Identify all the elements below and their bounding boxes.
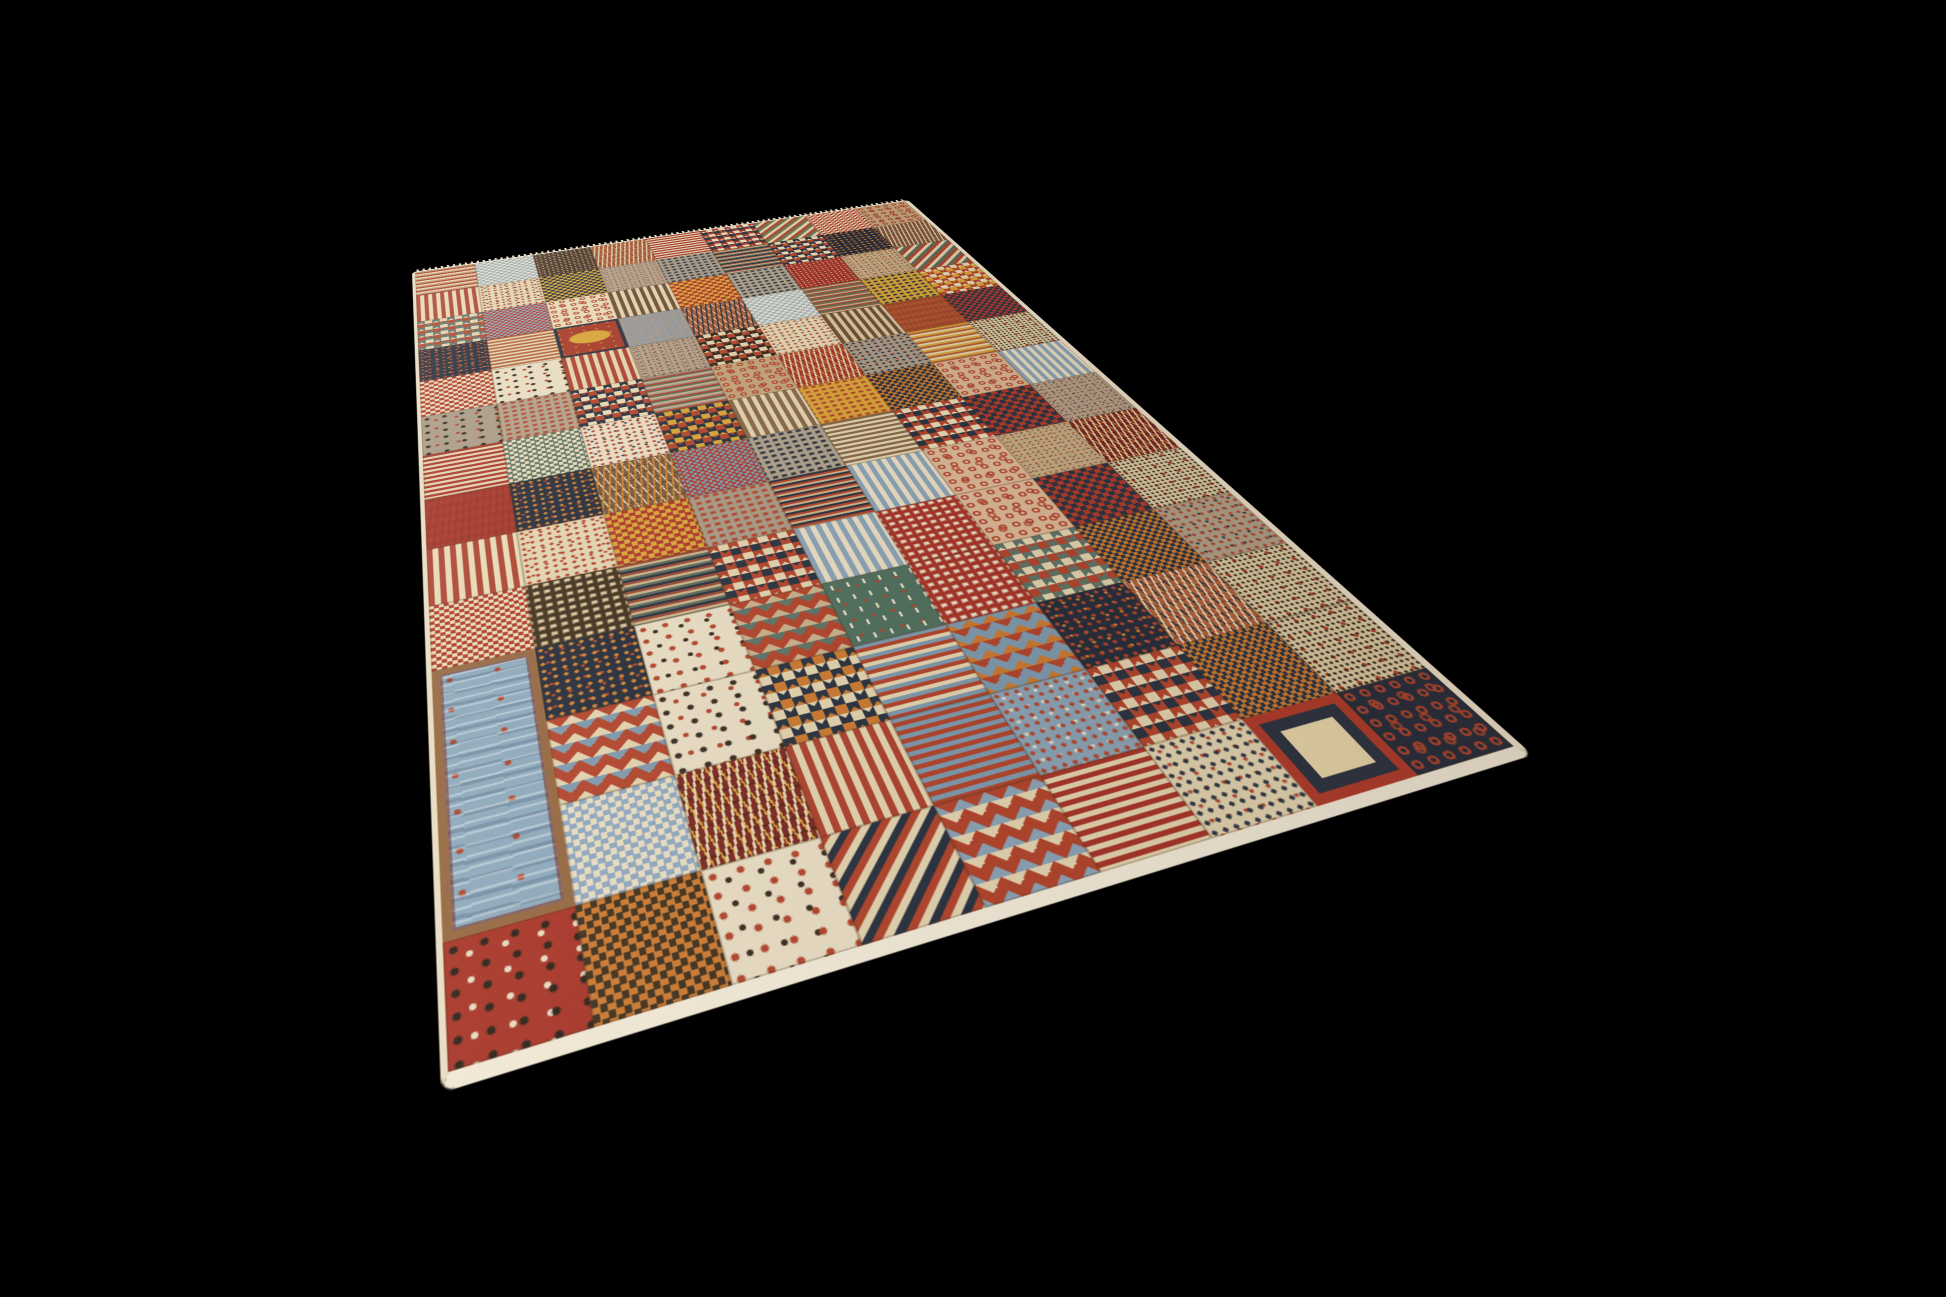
rug-grid bbox=[412, 200, 1533, 1093]
photo-background bbox=[0, 0, 1946, 1297]
patchwork-rug bbox=[412, 200, 1533, 1093]
